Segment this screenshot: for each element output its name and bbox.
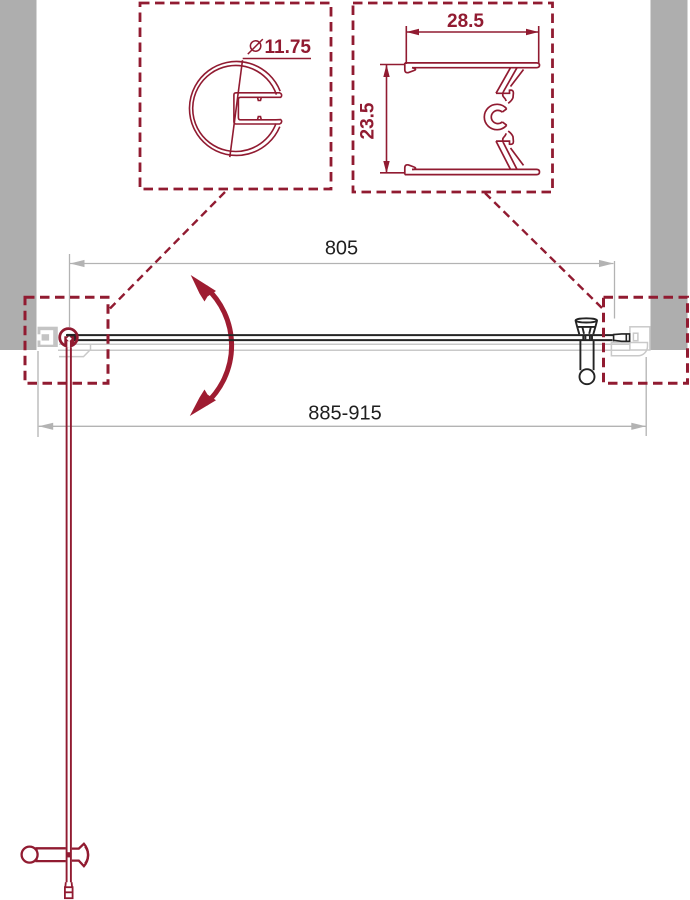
svg-text:805: 805 (325, 238, 358, 260)
svg-text:11.75: 11.75 (265, 37, 312, 58)
svg-text:23.5: 23.5 (358, 102, 379, 139)
svg-text:28.5: 28.5 (447, 11, 484, 32)
svg-text:885-915: 885-915 (308, 403, 381, 425)
